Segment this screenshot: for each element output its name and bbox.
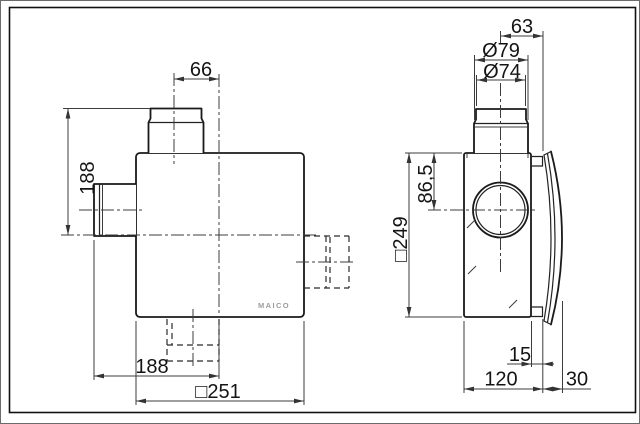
side-cover-profile xyxy=(544,152,562,325)
side-bottom-tab xyxy=(531,307,543,317)
side-dim-cover-depth: 30 xyxy=(566,369,588,391)
front-top-duct xyxy=(149,109,204,154)
technical-drawing: MAICO 66 188 188 □251 xyxy=(1,1,640,424)
side-dim-flange-gap: 15 xyxy=(509,344,531,366)
front-dim-duct-offset: 66 xyxy=(190,59,212,81)
front-view: MAICO 66 188 188 □251 xyxy=(61,59,354,405)
side-dim-outer-dia: Ø79 xyxy=(482,40,520,62)
maico-logo: MAICO xyxy=(258,301,290,310)
front-hidden-bottom-spigot xyxy=(167,309,219,369)
side-dim-top-to-axis: 86,5 xyxy=(415,165,437,204)
side-top-tab xyxy=(531,157,543,167)
side-dim-depth: 120 xyxy=(484,369,517,391)
side-dim-duct-to-wall: 63 xyxy=(511,16,533,38)
side-dim-height: □249 xyxy=(390,216,412,261)
drawing-sheet: MAICO 66 188 188 □251 xyxy=(0,0,640,424)
side-view: 63 Ø79 Ø74 86,5 □249 15 120 30 xyxy=(390,16,591,393)
front-dim-height: 188 xyxy=(77,161,99,194)
side-dim-inner-dia: Ø74 xyxy=(483,61,521,83)
side-body-outline xyxy=(464,153,531,317)
front-dim-width: □251 xyxy=(195,381,240,403)
front-dim-spigot-offset: 188 xyxy=(135,356,168,378)
